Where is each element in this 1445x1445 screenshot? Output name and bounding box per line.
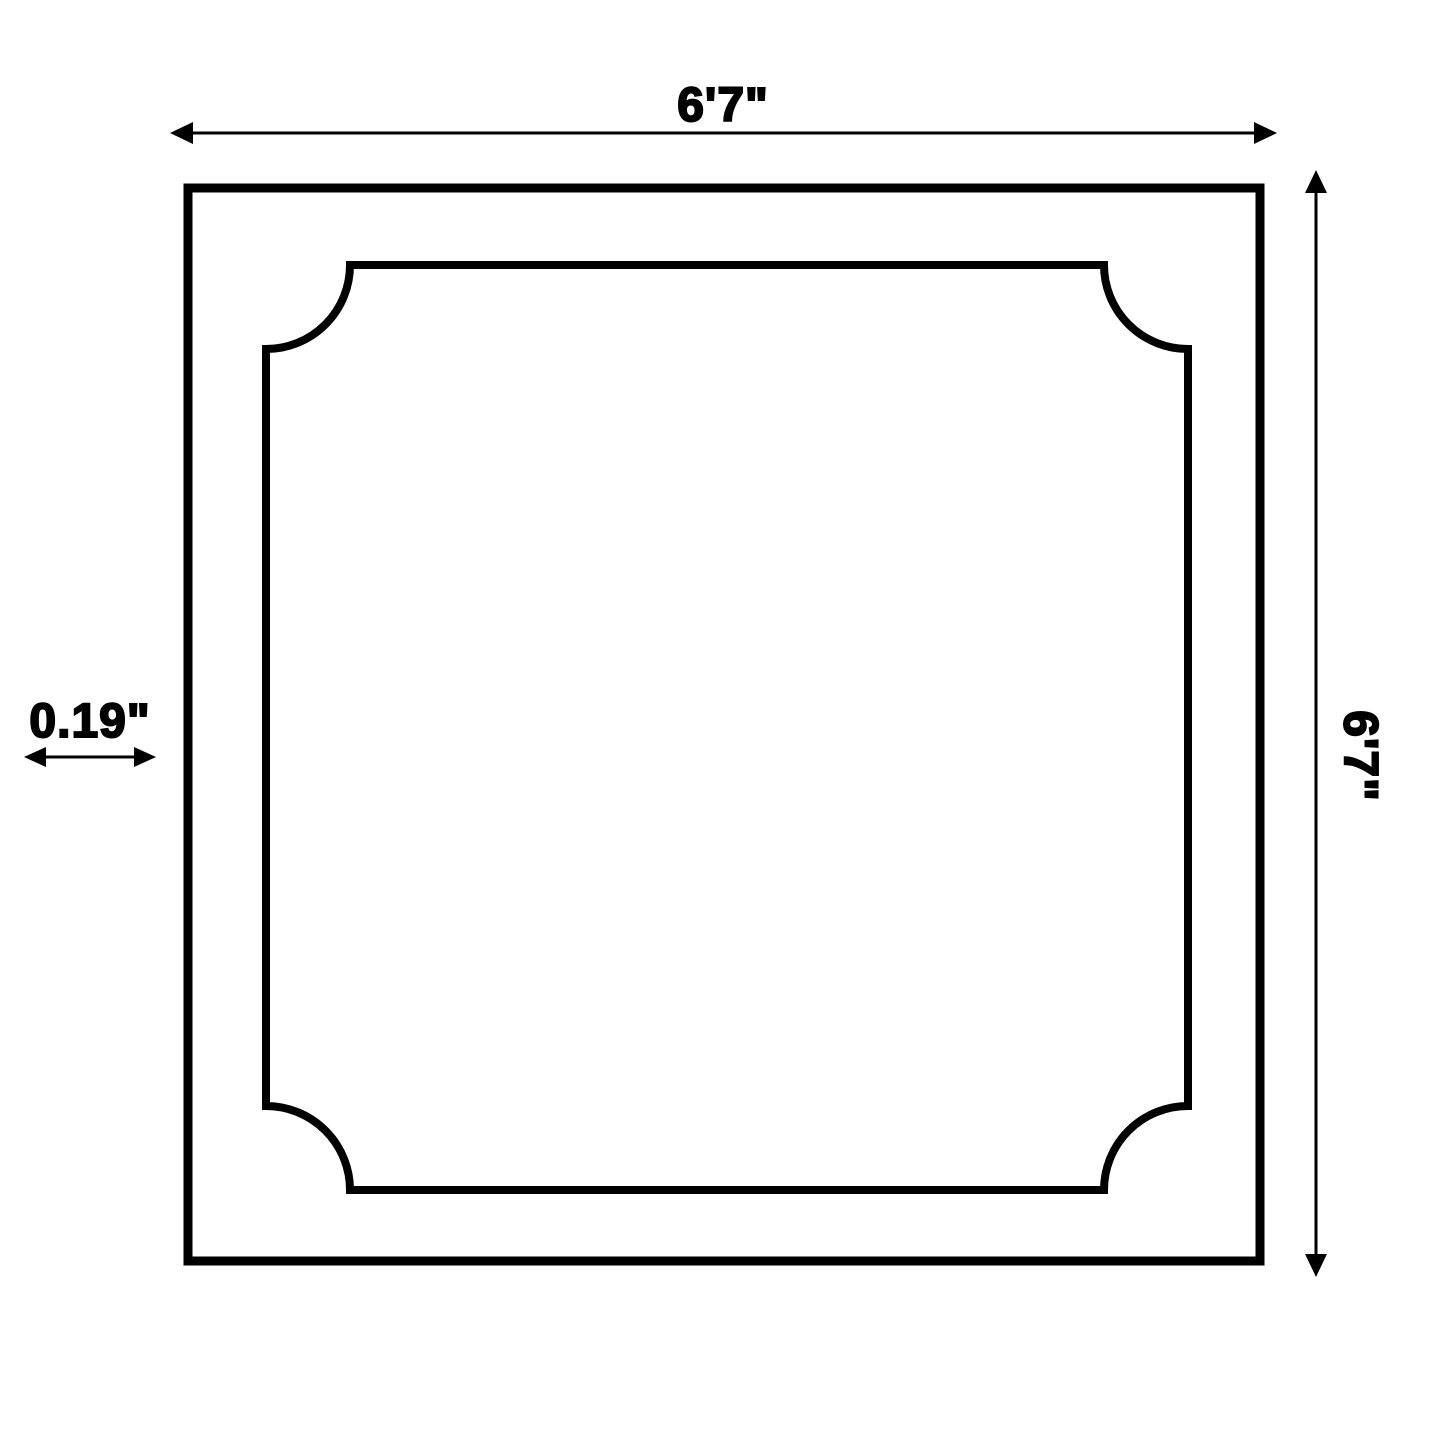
arrow-down-icon xyxy=(1305,1254,1327,1277)
height-dimension: 6'7" xyxy=(1305,170,1387,1277)
arrow-left-small-icon xyxy=(24,747,46,767)
width-dimension-label: 6'7" xyxy=(677,79,769,132)
arrow-right-icon xyxy=(1254,122,1277,144)
inner-frame-outline xyxy=(266,265,1188,1190)
thickness-dimension-label: 0.19" xyxy=(29,695,150,748)
arrow-right-small-icon xyxy=(134,747,156,767)
diagram-canvas: 6'7" 6'7" 0.19" xyxy=(0,0,1445,1445)
outer-square-outline xyxy=(188,188,1260,1261)
dimension-diagram: 6'7" 6'7" 0.19" xyxy=(0,0,1445,1445)
thickness-dimension: 0.19" xyxy=(24,695,156,767)
arrow-left-icon xyxy=(170,122,193,144)
width-dimension: 6'7" xyxy=(170,79,1277,144)
height-dimension-label: 6'7" xyxy=(1334,710,1387,802)
arrow-up-icon xyxy=(1305,170,1327,193)
